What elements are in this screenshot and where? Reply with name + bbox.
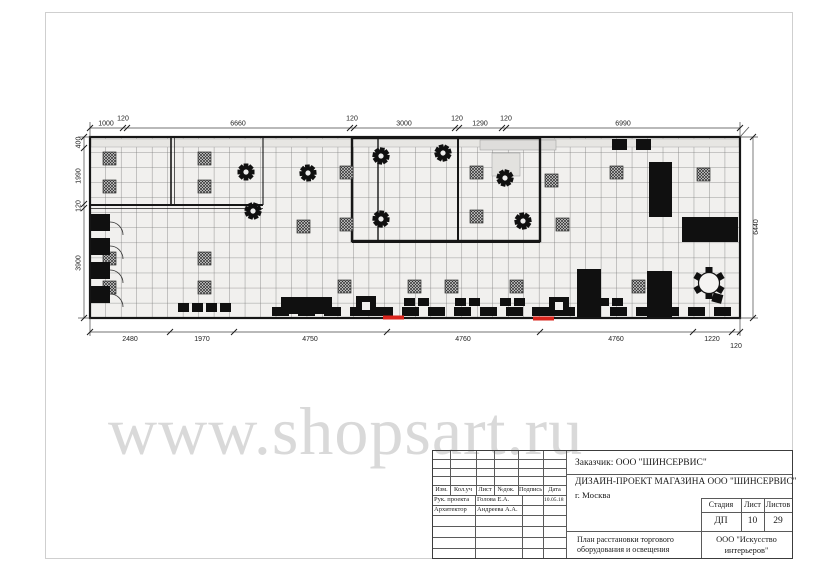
list-value: 10 [741, 512, 764, 531]
company-name: ООО "Искусство интерьеров" [701, 531, 792, 558]
col-podpis: Подпись [518, 485, 543, 495]
row-name: Голова Е.А. [477, 495, 522, 505]
col-ndok: №док. [494, 485, 518, 495]
title-block: Изм. Кол.уч Лист №док. Подпись Дата Рук.… [432, 450, 793, 559]
listov-header: Листов [764, 498, 792, 512]
listov-value: 29 [764, 512, 792, 531]
row-name: Андреева А.А. [477, 505, 522, 515]
dim-label: 2480 [122, 336, 138, 343]
dim-label: 1970 [194, 336, 210, 343]
dim-label: 120 [76, 200, 83, 212]
row-role: Архитектор [434, 505, 475, 515]
project-city: г. Москва [575, 490, 610, 500]
dim-label: 1990 [76, 168, 83, 184]
list-header: Лист [741, 498, 764, 512]
stage-header: Стадия [701, 498, 741, 512]
drawing-sheet: www.shopsart.ru [0, 0, 822, 567]
dim-label: 3000 [396, 121, 412, 128]
sheet-title: План расстановки торгового оборудования … [567, 531, 701, 558]
col-list: Лист [476, 485, 494, 495]
dim-label: 6990 [615, 121, 631, 128]
dim-label: 6440 [753, 219, 760, 235]
dim-label: 1290 [472, 121, 488, 128]
dim-label: 120 [346, 116, 358, 123]
dim-label: 4760 [455, 336, 471, 343]
dim-label: 6660 [230, 121, 246, 128]
dim-label: 4760 [608, 336, 624, 343]
dim-label: 4750 [302, 336, 318, 343]
row-date: 10.05.18 [544, 495, 566, 505]
project-title: ДИЗАЙН-ПРОЕКТ МАГАЗИНА ООО "ШИНСЕРВИС" [567, 477, 800, 488]
dim-label: 120 [117, 116, 129, 123]
dim-label: 1000 [98, 121, 114, 128]
col-koluch: Кол.уч [450, 485, 476, 495]
dim-label: 120 [730, 343, 742, 350]
col-data: Дата [543, 485, 566, 495]
dim-label: 400 [76, 137, 83, 149]
dim-label: 120 [451, 116, 463, 123]
dim-label: 1220 [704, 336, 720, 343]
dim-label: 3900 [76, 255, 83, 271]
customer-cell: Заказчик: ООО "ШИНСЕРВИС" [567, 451, 792, 475]
col-izm: Изм. [433, 485, 450, 495]
row-role: Рук. проекта [434, 495, 475, 505]
stage-value: ДП [701, 512, 741, 531]
dim-label: 120 [500, 116, 512, 123]
